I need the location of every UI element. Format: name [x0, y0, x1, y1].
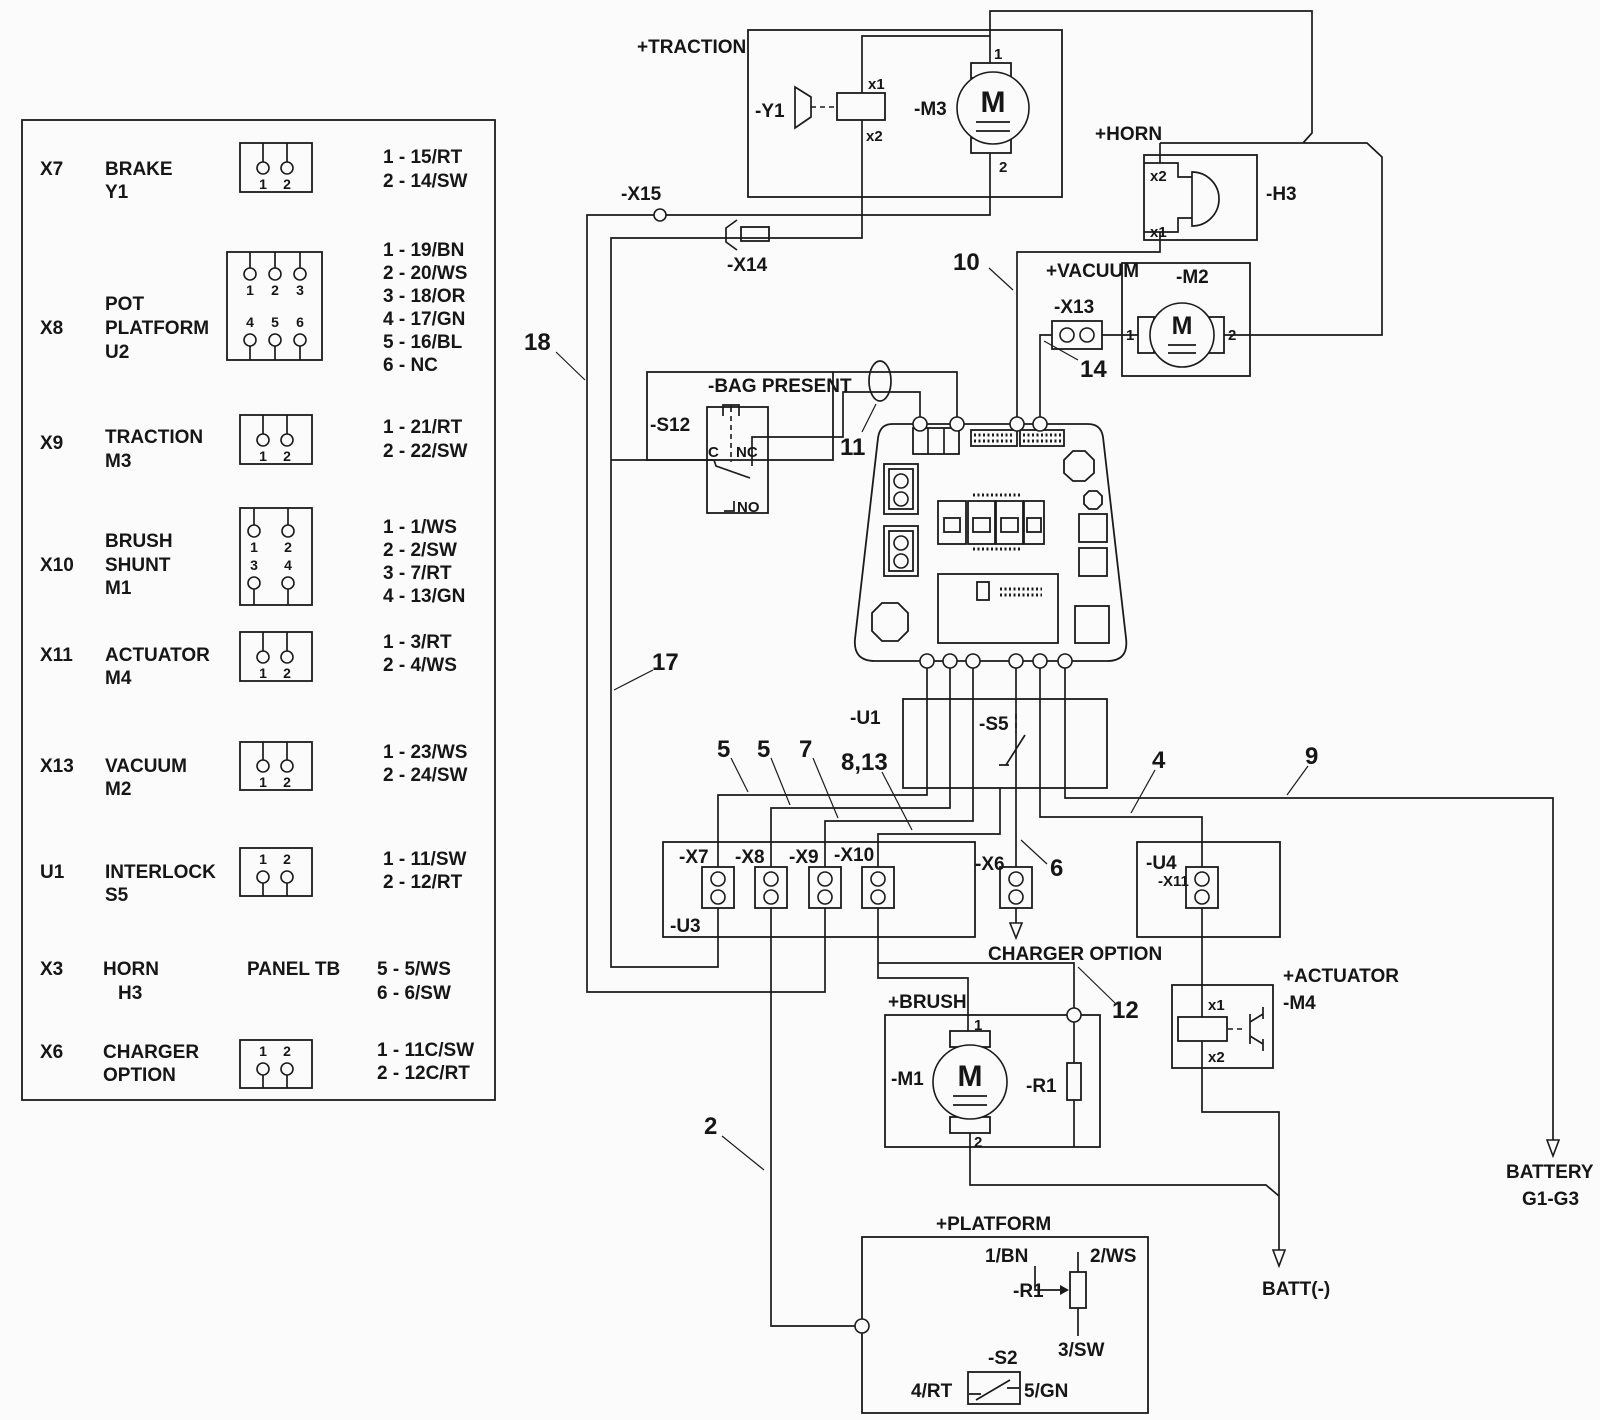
pin-number: 2: [271, 282, 279, 298]
legend-pin: 5 - 16/BL: [383, 332, 463, 353]
pot-pin-1bn: 1/BN: [985, 1246, 1028, 1267]
connector-icon: [240, 1040, 312, 1088]
m3-pin-1: 1: [994, 46, 1002, 63]
charger-option-label: CHARGER OPTION: [988, 944, 1162, 965]
y1-x1-pin-label: x1: [868, 76, 885, 93]
legend-name: SHUNT: [105, 555, 171, 576]
s12-no-pin: NO: [737, 499, 760, 516]
legend-name: BRUSH: [105, 531, 173, 552]
actuator-zone-label: +ACTUATOR: [1283, 966, 1399, 987]
legend-row-x6: X6 CHARGER OPTION 1 2 1 - 11C/SW 2 - 12C…: [40, 1040, 474, 1088]
wiring-diagram-page: X7 BRAKE Y1 1 2 1 - 15/RT 2 - 14/SW X8 P…: [0, 0, 1600, 1420]
legend-pin: 2 - 20/WS: [383, 263, 467, 284]
pin-number: 3: [296, 282, 304, 298]
legend-pin: 1 - 21/RT: [383, 417, 463, 438]
m1-motor-letter: M: [958, 1060, 983, 1093]
battery-range-label: G1-G3: [1522, 1189, 1579, 1210]
legend-pin: 1 - 23/WS: [383, 742, 467, 763]
x14-connector-icon: [741, 227, 769, 241]
legend-ref: U2: [105, 342, 129, 363]
m3-label: -M3: [914, 99, 947, 120]
legend-name: ACTUATOR: [105, 645, 210, 666]
legend-name: PLATFORM: [105, 318, 209, 339]
board-octagon-1: [1064, 451, 1094, 481]
wire-number-9: 9: [1305, 743, 1318, 770]
connector-icon: [240, 415, 312, 464]
legend-name: HORN: [103, 959, 159, 980]
pot-pin-2ws: 2/WS: [1090, 1246, 1136, 1267]
pin-number: 2: [284, 539, 292, 555]
pin-number: 1: [259, 448, 267, 464]
wire-number-5b: 5: [757, 736, 770, 763]
leader-lines: [556, 268, 1308, 1170]
wire-paths: [587, 11, 1553, 1336]
legend-row-u1: U1 INTERLOCK S5 1 2 1 - 11/SW 2 - 12/RT: [40, 848, 466, 906]
pin-number: 2: [283, 448, 291, 464]
x6-charger-group: -X6 CHARGER OPTION 6: [975, 854, 1162, 965]
legend-name: INTERLOCK: [105, 862, 216, 883]
legend-pin: 2 - 4/WS: [383, 655, 457, 676]
pin-header-2: [1020, 430, 1064, 446]
pin-number: 6: [296, 314, 304, 330]
legend-id: X9: [40, 433, 63, 454]
u3-connector-bank: -U3 -X7 -X8 -X9 -X10: [670, 845, 894, 937]
legend-pin: 1 - 15/RT: [383, 147, 463, 168]
legend-row-x3: X3 HORN H3 PANEL TB 5 - 5/WS 6 - 6/SW: [40, 959, 451, 1004]
legend-ref: S5: [105, 885, 129, 906]
long-wire-numbers: 18 17: [524, 329, 679, 676]
pot-wiper-arrow: [1060, 1285, 1069, 1295]
u1-interlock-group: -U1 -S5 5 5 7 8,13 4 9: [717, 708, 1318, 776]
traction-zone-label: +TRACTION: [637, 37, 746, 58]
legend-ref: M4: [105, 668, 132, 689]
harness-oval: [869, 361, 891, 401]
s12-nc-pin: NC: [736, 444, 758, 461]
legend-pin: 4 - 13/GN: [383, 586, 465, 607]
inline-connectors: -X15 -X14: [621, 184, 769, 276]
legend-pin: 1 - 19/BN: [383, 240, 464, 261]
legend-name: TRACTION: [105, 427, 203, 448]
x11-label: -X11: [1158, 873, 1189, 890]
legend-ref: Y1: [105, 182, 129, 203]
x7-label: -X7: [679, 847, 709, 868]
m3-pin-2: 2: [999, 159, 1007, 176]
r1-brush-label: -R1: [1026, 1076, 1057, 1097]
m2-pin-1: 1: [1126, 327, 1134, 344]
legend-row-x8: X8 POT PLATFORM U2 1 2 3 4 5 6 1 - 19/BN…: [40, 240, 467, 376]
platform-group: +PLATFORM 1/BN 2/WS 3/SW -R1 -S2 4/RT 5/…: [704, 1113, 1136, 1404]
legend-pin: 2 - 12/RT: [383, 872, 463, 893]
s2-pin-5gn: 5/GN: [1024, 1381, 1068, 1402]
legend-name: CHARGER: [103, 1042, 199, 1063]
wire-number-10: 10: [953, 249, 980, 276]
r1-pot-label: -R1: [1013, 1281, 1044, 1302]
legend-id: X10: [40, 555, 74, 576]
m2-label: -M2: [1176, 267, 1209, 288]
wire-number-17: 17: [652, 649, 679, 676]
y1-x2-pin-label: x2: [866, 128, 883, 145]
connector-icon: [240, 143, 312, 192]
horn-speaker-icon: [1192, 172, 1219, 226]
legend-name: VACUUM: [105, 756, 187, 777]
legend-pin: 1 - 1/WS: [383, 517, 457, 538]
m2-pin-2: 2: [1228, 327, 1236, 344]
brush-zone-label: +BRUSH: [888, 992, 967, 1013]
legend-pin: 4 - 17/GN: [383, 309, 465, 330]
legend-pin: 2 - 24/SW: [383, 765, 468, 786]
pin-number: 1: [259, 774, 267, 790]
legend-id: X6: [40, 1042, 63, 1063]
legend-ref: M2: [105, 779, 131, 800]
legend-pin: 1 - 3/RT: [383, 632, 452, 653]
pot-resistor-icon: [1070, 1272, 1086, 1308]
connector-icon: [240, 848, 312, 896]
x14-label: -X14: [727, 255, 768, 276]
s2-switch-icon: [969, 1380, 1019, 1400]
m4-coil: [1178, 1017, 1227, 1041]
wire-number-18: 18: [524, 329, 551, 356]
actuator-group: +ACTUATOR -M4 x1 x2: [1178, 966, 1399, 1066]
y1-label: -Y1: [755, 101, 785, 122]
horn-group: +HORN x2 x1 -H3: [1095, 124, 1297, 241]
x14-bracket: [726, 220, 737, 250]
pin-number: 1: [259, 851, 267, 867]
legend-pin: 3 - 7/RT: [383, 563, 452, 584]
m1-label: -M1: [891, 1069, 924, 1090]
legend-id: X7: [40, 159, 63, 180]
legend-name: OPTION: [103, 1065, 176, 1086]
pin-number: 2: [283, 176, 291, 192]
pin-number: 4: [246, 314, 254, 330]
legend-pin: 5 - 5/WS: [377, 959, 451, 980]
pin-header-1: [971, 430, 1017, 446]
vacuum-zone-label: +VACUUM: [1046, 261, 1139, 282]
x15-label: -X15: [621, 184, 662, 205]
wire-number-8-13: 8,13: [841, 749, 888, 776]
pin-number: 1: [250, 539, 258, 555]
u3-label: -U3: [670, 916, 701, 937]
bag-present-group: -BAG PRESENT -S12 C NC NO 11: [650, 361, 891, 516]
pin-number: 1: [246, 282, 254, 298]
legend-ref: H3: [118, 983, 142, 1004]
brush-terminal-circle: [1067, 1008, 1081, 1022]
r1-resistor-icon: [1067, 1063, 1081, 1100]
pin-number: 2: [283, 1043, 291, 1059]
wire-number-7: 7: [799, 736, 812, 763]
m4-label: -M4: [1283, 993, 1316, 1014]
wire-number-4: 4: [1152, 747, 1166, 774]
m1-pin-2: 2: [974, 1134, 982, 1151]
legend-ref: M3: [105, 451, 131, 472]
x13-label: -X13: [1054, 297, 1094, 318]
battery-arrow: [1547, 1140, 1559, 1156]
pin-number: 4: [284, 557, 292, 573]
x8-label: -X8: [735, 847, 765, 868]
platform-zone-label: +PLATFORM: [936, 1214, 1051, 1235]
pin-number: 1: [259, 1043, 267, 1059]
horn-zone-label: +HORN: [1095, 124, 1162, 145]
legend-pin: 6 - 6/SW: [377, 983, 451, 1004]
board-octagon-3: [872, 603, 908, 641]
legend-row-x11: X11 ACTUATOR M4 1 2 1 - 3/RT 2 - 4/WS: [40, 632, 457, 689]
legend-pin: 1 - 11/SW: [383, 849, 466, 870]
x10-label: -X10: [834, 845, 874, 866]
legend-row-x7: X7 BRAKE Y1 1 2 1 - 15/RT 2 - 14/SW: [40, 143, 468, 203]
s12-c-pin: C: [708, 444, 719, 461]
x15-connector-icon: [654, 209, 666, 221]
legend-row-x9: X9 TRACTION M3 1 2 1 - 21/RT 2 - 22/SW: [40, 415, 468, 472]
legend-panel-tb: PANEL TB: [247, 959, 340, 980]
pin-number: 1: [259, 665, 267, 681]
legend-id: X11: [40, 645, 73, 666]
m4-x1-pin: x1: [1208, 997, 1225, 1014]
wire-number-11: 11: [840, 434, 865, 461]
s2-pin-4rt: 4/RT: [911, 1381, 953, 1402]
battery-label: BATTERY: [1506, 1162, 1594, 1183]
s5-switch-arm: [999, 735, 1025, 765]
legend-panel: X7 BRAKE Y1 1 2 1 - 15/RT 2 - 14/SW X8 P…: [22, 120, 495, 1100]
battery-terminals: BATTERY G1-G3 BATT(-): [1262, 1140, 1594, 1300]
u3-box: [663, 842, 975, 937]
y1-coil: [837, 93, 885, 120]
u4-group: -U4 -X11: [1146, 853, 1218, 908]
h3-label: -H3: [1266, 184, 1297, 205]
legend-pin: 2 - 2/SW: [383, 540, 457, 561]
pin-number: 2: [283, 665, 291, 681]
wire-number-12: 12: [1112, 997, 1139, 1024]
s12-label: -S12: [650, 415, 690, 436]
dashed-links: [731, 107, 1242, 1029]
legend-pin: 6 - NC: [383, 355, 438, 376]
batt-neg-arrow: [1273, 1250, 1285, 1266]
m3-motor-letter: M: [981, 86, 1006, 119]
u1-label: -U1: [850, 708, 881, 729]
legend-id: X8: [40, 318, 63, 339]
pin-number: 1: [259, 176, 267, 192]
legend-id: X3: [40, 959, 63, 980]
wire-number-2: 2: [704, 1113, 717, 1140]
wire-number-14: 14: [1080, 356, 1107, 383]
legend-pin: 3 - 18/OR: [383, 286, 466, 307]
legend-row-x10: X10 BRUSH SHUNT M1 1 2 3 4 1 - 1/WS 2 - …: [40, 508, 465, 607]
s5-label: -S5: [979, 714, 1009, 735]
u1-interlock-box: [903, 699, 1107, 788]
vacuum-group: +VACUUM -M2 -X13 M 1 2 10 14: [953, 249, 1236, 383]
wire-number-6: 6: [1050, 855, 1063, 882]
connector-icon: [240, 632, 312, 681]
m4-transistor-icon: [1250, 1007, 1263, 1051]
legend-row-x13: X13 VACUUM M2 1 2 1 - 23/WS 2 - 24/SW: [40, 742, 468, 800]
bag-present-label: -BAG PRESENT: [708, 376, 852, 397]
pin-number: 2: [283, 774, 291, 790]
pin-number: 2: [283, 851, 291, 867]
legend-pin: 2 - 22/SW: [383, 441, 468, 462]
legend-pin: 1 - 11C/SW: [377, 1040, 474, 1061]
x9-label: -X9: [789, 847, 819, 868]
controller-board: [855, 417, 1127, 668]
h3-x2-pin: x2: [1150, 168, 1167, 185]
wire-number-5a: 5: [717, 736, 730, 763]
pin-number: 3: [250, 557, 258, 573]
m2-motor-letter: M: [1172, 312, 1193, 340]
pin-number: 5: [271, 314, 279, 330]
brake-symbol: [795, 87, 811, 128]
legend-name: BRAKE: [105, 159, 173, 180]
board-module: [938, 574, 1058, 643]
m4-x2-pin: x2: [1208, 1049, 1225, 1066]
legend-id: U1: [40, 862, 65, 883]
connector-icon: [240, 742, 312, 790]
platform-terminal-circle: [855, 1319, 869, 1333]
schematic-canvas: X7 BRAKE Y1 1 2 1 - 15/RT 2 - 14/SW X8 P…: [0, 0, 1600, 1420]
u4-label: -U4: [1146, 853, 1177, 874]
legend-pin: 2 - 12C/RT: [377, 1063, 470, 1084]
batt-neg-label: BATT(-): [1262, 1279, 1330, 1300]
legend-pin: 2 - 14/SW: [383, 171, 468, 192]
board-octagon-2: [1084, 491, 1102, 509]
legend-ref: M1: [105, 578, 132, 599]
s2-label: -S2: [988, 1348, 1018, 1369]
h3-x1-pin: x1: [1150, 224, 1167, 241]
legend-name: POT: [105, 294, 144, 315]
legend-id: X13: [40, 756, 74, 777]
m1-pin-1: 1: [974, 1017, 982, 1034]
charger-arrow: [1010, 923, 1022, 938]
pot-pin-3sw: 3/SW: [1058, 1340, 1105, 1361]
